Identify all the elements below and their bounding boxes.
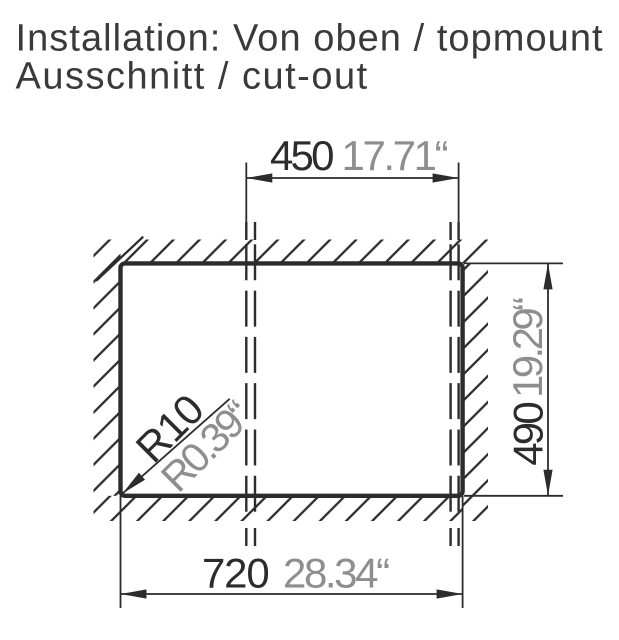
svg-text:Installation: Von oben / topmo: Installation: Von oben / topmount <box>16 18 604 60</box>
svg-text:28.34“: 28.34“ <box>283 549 389 596</box>
svg-text:490: 490 <box>505 403 552 466</box>
svg-text:17.71“: 17.71“ <box>342 132 448 179</box>
svg-text:450: 450 <box>270 132 333 179</box>
svg-text:19.29“: 19.29“ <box>504 298 551 398</box>
svg-text:Ausschnitt / cut-out: Ausschnitt / cut-out <box>16 56 369 98</box>
svg-text:720: 720 <box>202 549 268 596</box>
